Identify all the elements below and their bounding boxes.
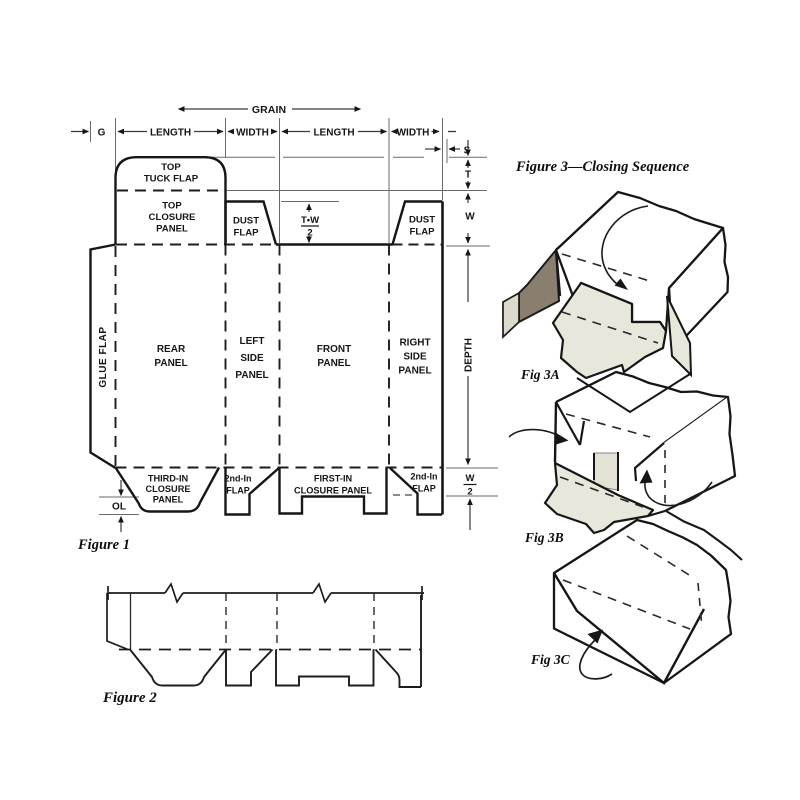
svg-text:Figure 1: Figure 1 bbox=[77, 537, 130, 553]
svg-text:T•W: T•W bbox=[301, 215, 319, 226]
svg-text:Fig 3A: Fig 3A bbox=[520, 367, 560, 382]
svg-text:DEPTH: DEPTH bbox=[464, 338, 475, 372]
svg-text:THIRD-IN: THIRD-IN bbox=[148, 474, 189, 484]
svg-text:PANEL: PANEL bbox=[317, 358, 350, 369]
svg-text:DUST: DUST bbox=[233, 216, 259, 227]
svg-text:W: W bbox=[466, 473, 475, 484]
svg-text:PANEL: PANEL bbox=[398, 366, 431, 377]
svg-text:CLOSURE: CLOSURE bbox=[146, 484, 191, 494]
svg-text:Fig 3B: Fig 3B bbox=[524, 530, 564, 545]
svg-text:SIDE: SIDE bbox=[240, 353, 264, 364]
svg-text:2nd-In: 2nd-In bbox=[225, 474, 252, 484]
svg-text:W: W bbox=[465, 212, 475, 223]
svg-text:GLUE FLAP: GLUE FLAP bbox=[98, 326, 109, 387]
svg-text:REAR: REAR bbox=[157, 344, 186, 355]
svg-text:LENGTH: LENGTH bbox=[150, 128, 191, 139]
svg-text:G: G bbox=[98, 128, 106, 139]
svg-text:LENGTH: LENGTH bbox=[313, 128, 354, 139]
svg-text:FLAP: FLAP bbox=[409, 227, 435, 238]
svg-text:TOP: TOP bbox=[161, 162, 181, 173]
svg-text:PANEL: PANEL bbox=[153, 495, 184, 505]
svg-text:CLOSURE: CLOSURE bbox=[149, 212, 197, 223]
svg-text:GRAIN: GRAIN bbox=[252, 104, 286, 116]
svg-text:RIGHT: RIGHT bbox=[399, 338, 430, 349]
svg-text:OL: OL bbox=[112, 502, 126, 513]
svg-text:PANEL: PANEL bbox=[235, 370, 268, 381]
svg-text:TUCK FLAP: TUCK FLAP bbox=[144, 174, 199, 185]
svg-text:FLAP: FLAP bbox=[233, 228, 259, 239]
svg-text:WIDTH: WIDTH bbox=[397, 128, 430, 139]
svg-text:2: 2 bbox=[307, 228, 312, 239]
svg-text:SIDE: SIDE bbox=[403, 352, 427, 363]
svg-text:PANEL: PANEL bbox=[154, 358, 187, 369]
svg-text:TOP: TOP bbox=[162, 201, 182, 212]
svg-text:PANEL: PANEL bbox=[156, 224, 188, 235]
svg-text:FLAP: FLAP bbox=[226, 486, 250, 496]
svg-text:Figure 2: Figure 2 bbox=[102, 690, 157, 706]
svg-text:S: S bbox=[464, 146, 471, 157]
svg-text:LEFT: LEFT bbox=[240, 336, 265, 347]
svg-text:T: T bbox=[465, 170, 471, 181]
svg-text:Fig 3C: Fig 3C bbox=[530, 652, 571, 667]
svg-text:FIRST-IN: FIRST-IN bbox=[314, 474, 353, 484]
svg-text:CLOSURE PANEL: CLOSURE PANEL bbox=[294, 486, 372, 496]
svg-text:2nd-In: 2nd-In bbox=[411, 472, 438, 482]
svg-text:2: 2 bbox=[467, 487, 472, 498]
svg-text:Figure 3—Closing Sequence: Figure 3—Closing Sequence bbox=[515, 159, 690, 175]
svg-text:WIDTH: WIDTH bbox=[236, 128, 269, 139]
svg-text:FLAP: FLAP bbox=[412, 484, 436, 494]
svg-text:FRONT: FRONT bbox=[317, 344, 351, 355]
svg-text:DUST: DUST bbox=[409, 215, 435, 226]
